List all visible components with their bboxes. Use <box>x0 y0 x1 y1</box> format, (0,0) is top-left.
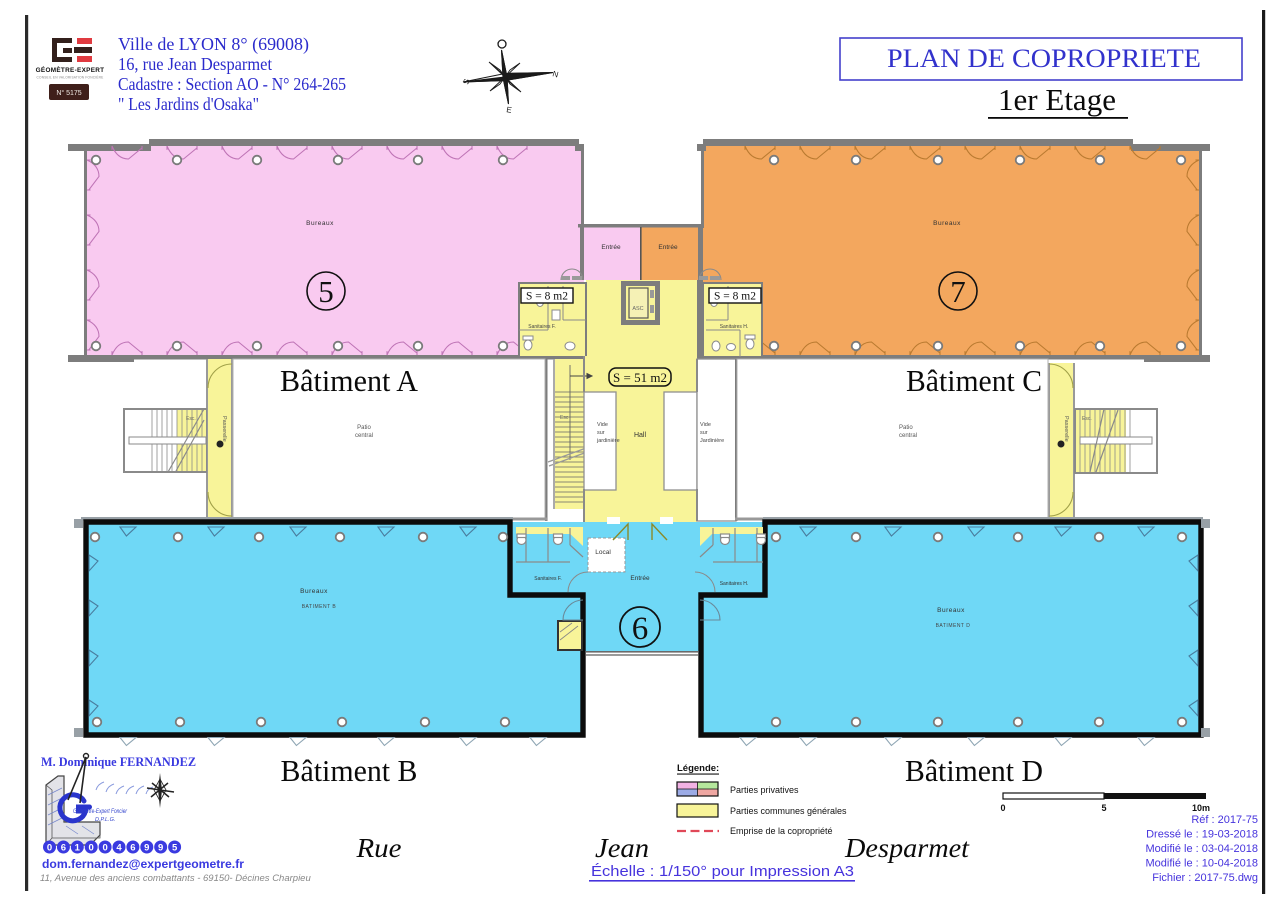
svg-text:6: 6 <box>130 843 135 854</box>
svg-text:Modifié le : 10-04-2018: Modifié le : 10-04-2018 <box>1145 858 1258 870</box>
svg-text:5: 5 <box>172 843 178 854</box>
svg-text:0: 0 <box>102 843 107 854</box>
svg-text:Ville de LYON 8° (69008): Ville de LYON 8° (69008) <box>118 34 309 55</box>
svg-text:Bureaux: Bureaux <box>306 220 334 227</box>
svg-text:Esc.: Esc. <box>186 416 196 422</box>
svg-text:10m: 10m <box>1192 803 1210 813</box>
svg-text:Échelle : 1/150° pour Impressi: Échelle : 1/150° pour Impression A3 <box>591 863 854 880</box>
svg-text:Bureaux: Bureaux <box>300 588 328 595</box>
svg-text:Parties privatives: Parties privatives <box>730 785 799 795</box>
svg-text:6: 6 <box>632 611 649 647</box>
svg-text:Cadastre : Section AO - N° 264: Cadastre : Section AO - N° 264-265 <box>118 74 346 94</box>
svg-text:Patio: Patio <box>357 425 371 431</box>
svg-text:dom.fernandez@expertgeometre.f: dom.fernandez@expertgeometre.fr <box>42 859 245 871</box>
svg-text:0: 0 <box>47 843 52 854</box>
svg-text:Sanitaires F.: Sanitaires F. <box>534 576 562 582</box>
svg-text:5: 5 <box>1101 803 1106 813</box>
svg-text:6: 6 <box>61 843 66 854</box>
svg-text:Entrée: Entrée <box>658 244 678 251</box>
svg-text:Bâtiment A: Bâtiment A <box>280 363 419 398</box>
svg-text:S = 8 m2: S = 8 m2 <box>526 291 568 303</box>
svg-text:" Les Jardins d'Osaka": " Les Jardins d'Osaka" <box>118 94 259 114</box>
svg-text:ASC: ASC <box>632 306 643 312</box>
svg-text:M. Dominique FERNANDEZ: M. Dominique FERNANDEZ <box>41 755 196 769</box>
svg-text:Réf : 2017-75: Réf : 2017-75 <box>1191 814 1258 826</box>
svg-text:Modifié le : 03-04-2018: Modifié le : 03-04-2018 <box>1145 843 1258 855</box>
svg-text:Passerelle: Passerelle <box>221 416 227 442</box>
svg-text:Sanitaires H.: Sanitaires H. <box>720 324 749 330</box>
svg-text:Entrée: Entrée <box>630 575 650 582</box>
svg-text:Légende:: Légende: <box>677 763 719 774</box>
svg-text:Jardinière: Jardinière <box>700 438 724 444</box>
svg-text:Vide: Vide <box>597 422 608 428</box>
svg-text:9: 9 <box>144 843 149 854</box>
svg-text:Vide: Vide <box>700 422 711 428</box>
svg-text:Emprise de la copropriété: Emprise de la copropriété <box>730 826 833 836</box>
svg-text:Passerelle: Passerelle <box>1063 416 1069 442</box>
svg-text:0: 0 <box>89 843 94 854</box>
svg-text:sur: sur <box>700 430 708 436</box>
svg-text:S = 51 m2: S = 51 m2 <box>613 370 667 385</box>
svg-text:9: 9 <box>158 843 163 854</box>
svg-text:D.P.L.G.: D.P.L.G. <box>95 817 115 823</box>
svg-text:11, Avenue des anciens combatt: 11, Avenue des anciens combattants - 691… <box>40 873 311 884</box>
svg-text:Local: Local <box>595 549 611 556</box>
svg-text:Bureaux: Bureaux <box>933 220 961 227</box>
svg-text:N° 5175: N° 5175 <box>56 89 81 97</box>
svg-text:jardinière: jardinière <box>596 438 620 444</box>
svg-text:Sanitaires H.: Sanitaires H. <box>720 581 749 587</box>
svg-text:4: 4 <box>116 843 122 854</box>
svg-text:Esc: Esc <box>560 415 569 421</box>
svg-text:Rue: Rue <box>355 833 401 863</box>
svg-text:1: 1 <box>75 843 81 854</box>
svg-text:CONSEIL EN VALORISATION FONCIÈ: CONSEIL EN VALORISATION FONCIÈRE <box>37 75 104 80</box>
svg-text:GÉOMÈTRE-EXPERT: GÉOMÈTRE-EXPERT <box>36 65 105 74</box>
svg-text:Bâtiment B: Bâtiment B <box>281 753 418 788</box>
svg-text:Bureaux: Bureaux <box>937 607 965 614</box>
svg-text:BATIMENT B: BATIMENT B <box>302 604 337 610</box>
svg-text:Géomètre-Expert Foncier: Géomètre-Expert Foncier <box>73 808 128 815</box>
svg-text:Fichier : 2017-75.dwg: Fichier : 2017-75.dwg <box>1152 872 1258 884</box>
svg-text:Sanitaires F.: Sanitaires F. <box>528 324 556 330</box>
svg-text:Jean: Jean <box>595 833 649 863</box>
svg-text:central: central <box>355 433 373 439</box>
svg-text:sur: sur <box>597 430 605 436</box>
svg-text:Hall: Hall <box>634 432 647 439</box>
svg-text:1er Etage: 1er Etage <box>998 82 1116 117</box>
svg-text:central: central <box>899 433 917 439</box>
svg-text:Parties communes générales: Parties communes générales <box>730 806 847 816</box>
svg-text:Dressé le : 19-03-2018: Dressé le : 19-03-2018 <box>1146 829 1258 841</box>
svg-text:S = 8 m2: S = 8 m2 <box>714 291 756 303</box>
svg-text:Desparmet: Desparmet <box>844 833 971 863</box>
svg-text:7: 7 <box>950 274 966 309</box>
svg-text:16, rue Jean Desparmet: 16, rue Jean Desparmet <box>118 54 272 74</box>
svg-text:Bâtiment D: Bâtiment D <box>905 753 1043 788</box>
svg-text:BATIMENT D: BATIMENT D <box>936 623 971 629</box>
svg-text:PLAN DE COPROPRIETE: PLAN DE COPROPRIETE <box>887 43 1201 73</box>
svg-text:5: 5 <box>318 274 334 309</box>
svg-text:Patio: Patio <box>899 425 913 431</box>
svg-text:Entrée: Entrée <box>601 244 621 251</box>
svg-text:Bâtiment C: Bâtiment C <box>906 363 1042 398</box>
svg-text:0: 0 <box>1000 803 1005 813</box>
svg-text:Esc.: Esc. <box>1082 416 1092 422</box>
